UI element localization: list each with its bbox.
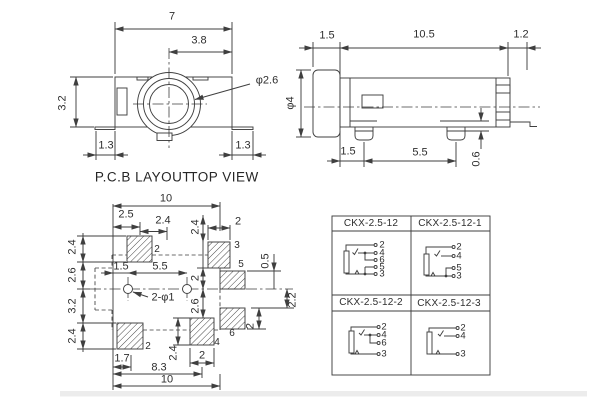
schematic-ckx-2-5-12 (344, 244, 377, 276)
pad-number-5: 5 (238, 260, 244, 270)
table-title-ckx-2-5-12: CKX-2.5-12 (344, 219, 398, 229)
dim-barrel-dia: φ4 (286, 96, 297, 109)
pin-label: 4 (460, 331, 465, 341)
schematic-ckx-2-5-12-3 (427, 327, 459, 356)
dim-hole-pitch: 5.5 (152, 262, 167, 273)
dim-pad4-center: 8.3 (151, 363, 166, 374)
dim-hole-offset: 1.5 (113, 262, 128, 273)
pin-label: 3 (379, 269, 384, 279)
dim-pad3-width: 2 (235, 217, 241, 228)
pad-number-2-top: 2 (154, 245, 160, 255)
pin-label: 3 (456, 271, 461, 281)
dim-pin-pitch: 5.5 (412, 148, 427, 159)
pad-number-6: 6 (229, 329, 235, 339)
dim-center-pad6: 2.2 (288, 292, 299, 307)
dim-pad3-center: 2 (191, 275, 202, 281)
connector-drawing-sheet: 7 3.8 3.2 1.3 1.3 φ2.6 P.C.B LAYOUT TOP … (0, 0, 600, 400)
dim-pcb-top-width: 10 (160, 194, 172, 205)
drawing-canvas (0, 0, 600, 400)
pin-label: 3 (381, 349, 386, 359)
dim-pad6-height: 2 (246, 323, 257, 329)
dim-pin1-offset: 1.5 (340, 147, 355, 158)
pad-number-2-bottom: 2 (145, 342, 151, 352)
dim-topview-width: 7 (169, 12, 175, 23)
dim-left-1: 2.4 (68, 239, 79, 254)
dim-left-2: 2.6 (68, 267, 79, 282)
dim-pad2b-offset: 1.7 (114, 354, 129, 365)
caption-top-view: TOP VIEW (189, 170, 259, 184)
pcb-layout-drawing (77, 202, 294, 390)
schematic-ckx-2-5-12-1 (424, 246, 455, 278)
table-title-ckx-2-5-12-3: CKX-2.5-12-3 (417, 299, 481, 309)
dim-col-height: 2.4 (191, 219, 202, 234)
dim-left-3: 3.2 (68, 298, 79, 313)
pin-label: 4 (456, 251, 461, 261)
dim-pad2-center: 2.5 (118, 210, 133, 221)
dim-side-tail: 1.2 (513, 30, 528, 41)
dim-lead-height: 0.6 (472, 151, 483, 166)
dim-side-front: 1.5 (319, 31, 334, 42)
dim-left-4: 2.4 (68, 328, 79, 343)
table-title-ckx-2-5-12-1: CKX-2.5-12-1 (418, 219, 482, 229)
dim-pad4-height: 2.4 (169, 345, 180, 360)
dim-pad4-width: 2 (199, 351, 205, 362)
schematic-ckx-2-5-12-2 (349, 326, 380, 356)
label-holes: 2-φ1 (151, 293, 174, 304)
pad-number-4: 4 (214, 338, 220, 348)
dim-side-length: 10.5 (413, 30, 434, 41)
pin-label: 3 (460, 349, 465, 359)
scan-artifact-band (60, 391, 587, 397)
dim-foot-right: 1.3 (235, 141, 250, 152)
caption-pcb-layout: P.C.B LAYOUT (95, 170, 191, 184)
dim-pcb-bottom-width: 10 (161, 375, 173, 386)
pin-label: 6 (381, 338, 386, 348)
table-title-ckx-2-5-12-2: CKX-2.5-12-2 (339, 298, 403, 308)
dim-center-pad4: 2.6 (191, 298, 202, 313)
dim-jack-bore: φ2.6 (256, 76, 278, 87)
dim-topview-center: 3.8 (191, 36, 206, 47)
dim-pad2-width: 2.4 (155, 216, 170, 227)
dim-foot-left: 1.3 (98, 141, 113, 152)
pad-number-3: 3 (234, 241, 240, 251)
variant-table (332, 216, 490, 375)
dim-pad-gap: 0.5 (261, 253, 272, 268)
dim-topview-height: 3.2 (58, 95, 69, 110)
